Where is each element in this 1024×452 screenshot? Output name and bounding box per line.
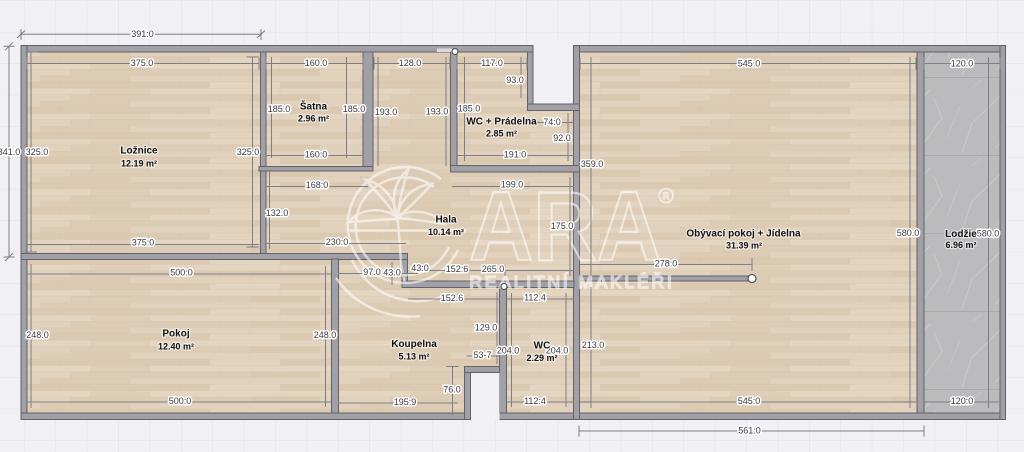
svg-text:230:0: 230:0 [326, 237, 349, 247]
svg-text:265.0: 265.0 [482, 264, 505, 274]
svg-text:132.0: 132.0 [266, 208, 289, 218]
svg-text:545.0: 545.0 [738, 59, 761, 69]
svg-text:580.0: 580.0 [897, 228, 920, 238]
svg-text:128.0: 128.0 [399, 58, 422, 68]
svg-text:193.0: 193.0 [375, 107, 398, 117]
svg-text:129.0: 129.0 [475, 323, 498, 333]
svg-text:2.29 m²: 2.29 m² [526, 353, 557, 363]
svg-text:53-7: 53-7 [473, 350, 491, 360]
svg-text:248.0: 248.0 [314, 330, 337, 340]
svg-text:375:0: 375:0 [132, 238, 155, 248]
svg-text:278:0: 278:0 [655, 259, 678, 269]
svg-text:561:0: 561:0 [738, 426, 761, 436]
svg-text:93.0: 93.0 [506, 75, 524, 85]
svg-text:WC: WC [534, 341, 551, 352]
svg-text:WC + Prádelna: WC + Prádelna [466, 117, 537, 128]
svg-text:160.0: 160.0 [305, 58, 328, 68]
svg-text:341.0: 341.0 [0, 147, 20, 157]
svg-text:5.13 m²: 5.13 m² [398, 352, 429, 362]
svg-text:160:0: 160:0 [305, 150, 328, 160]
svg-text:2.96 m²: 2.96 m² [298, 114, 329, 124]
svg-text:185.0: 185.0 [268, 104, 291, 114]
svg-text:43.0: 43.0 [383, 268, 401, 278]
svg-text:6.96 m²: 6.96 m² [945, 240, 976, 250]
svg-text:175.0: 175.0 [551, 221, 574, 231]
svg-text:120.0: 120.0 [951, 59, 974, 69]
svg-text:117.0: 117.0 [481, 58, 503, 68]
svg-text:Pokoj: Pokoj [162, 329, 189, 340]
svg-text:92.0: 92.0 [553, 133, 571, 143]
svg-text:Koupelna: Koupelna [391, 339, 437, 350]
svg-text:199.0: 199.0 [501, 180, 524, 190]
svg-text:204.0: 204.0 [497, 346, 520, 356]
svg-text:375.0: 375.0 [131, 58, 154, 68]
svg-text:545:0: 545:0 [738, 396, 761, 406]
svg-text:Lodžie: Lodžie [945, 229, 977, 240]
svg-text:74:0: 74:0 [543, 117, 561, 127]
svg-text:185.0: 185.0 [458, 104, 481, 114]
svg-text:Šatna: Šatna [300, 100, 328, 113]
svg-text:97.0: 97.0 [363, 267, 381, 277]
svg-text:112:4: 112:4 [524, 396, 546, 406]
svg-text:191:0: 191:0 [504, 150, 527, 160]
svg-text:REALITNÍ MAKLÉŘI: REALITNÍ MAKLÉŘI [469, 272, 674, 292]
svg-text:10.14 m²: 10.14 m² [428, 227, 464, 237]
svg-text:12.19 m²: 12.19 m² [121, 159, 157, 169]
svg-text:213.0: 213.0 [582, 340, 605, 350]
svg-text:31.39 m²: 31.39 m² [726, 241, 762, 251]
svg-text:76.0: 76.0 [443, 385, 461, 395]
svg-text:12.40 m²: 12.40 m² [158, 342, 194, 352]
svg-text:325.0: 325.0 [237, 147, 260, 157]
svg-text:Hala: Hala [435, 215, 457, 226]
svg-text:391:0: 391:0 [131, 29, 154, 39]
svg-text:359.0: 359.0 [581, 159, 604, 169]
svg-text:R: R [663, 191, 670, 201]
svg-text:Ložnice: Ložnice [120, 146, 158, 157]
svg-text:120:0: 120:0 [951, 396, 974, 406]
svg-text:580.0: 580.0 [977, 229, 1000, 239]
svg-text:152.6: 152.6 [441, 293, 464, 303]
svg-text:195:9: 195:9 [394, 397, 417, 407]
svg-text:248.0: 248.0 [26, 330, 49, 340]
svg-text:2.85 m²: 2.85 m² [486, 129, 517, 139]
svg-text:168:0: 168:0 [306, 180, 329, 190]
svg-text:152:6: 152:6 [446, 264, 469, 274]
svg-text:43:0: 43:0 [411, 263, 429, 273]
svg-text:185.0: 185.0 [343, 104, 366, 114]
svg-text:325.0: 325.0 [26, 147, 49, 157]
svg-text:112.4: 112.4 [524, 293, 546, 303]
svg-text:193.0: 193.0 [426, 107, 449, 117]
svg-text:500:0: 500:0 [169, 396, 192, 406]
svg-text:500:0: 500:0 [170, 268, 193, 278]
svg-text:Obývací pokoj + Jídelna: Obývací pokoj + Jídelna [686, 229, 801, 240]
